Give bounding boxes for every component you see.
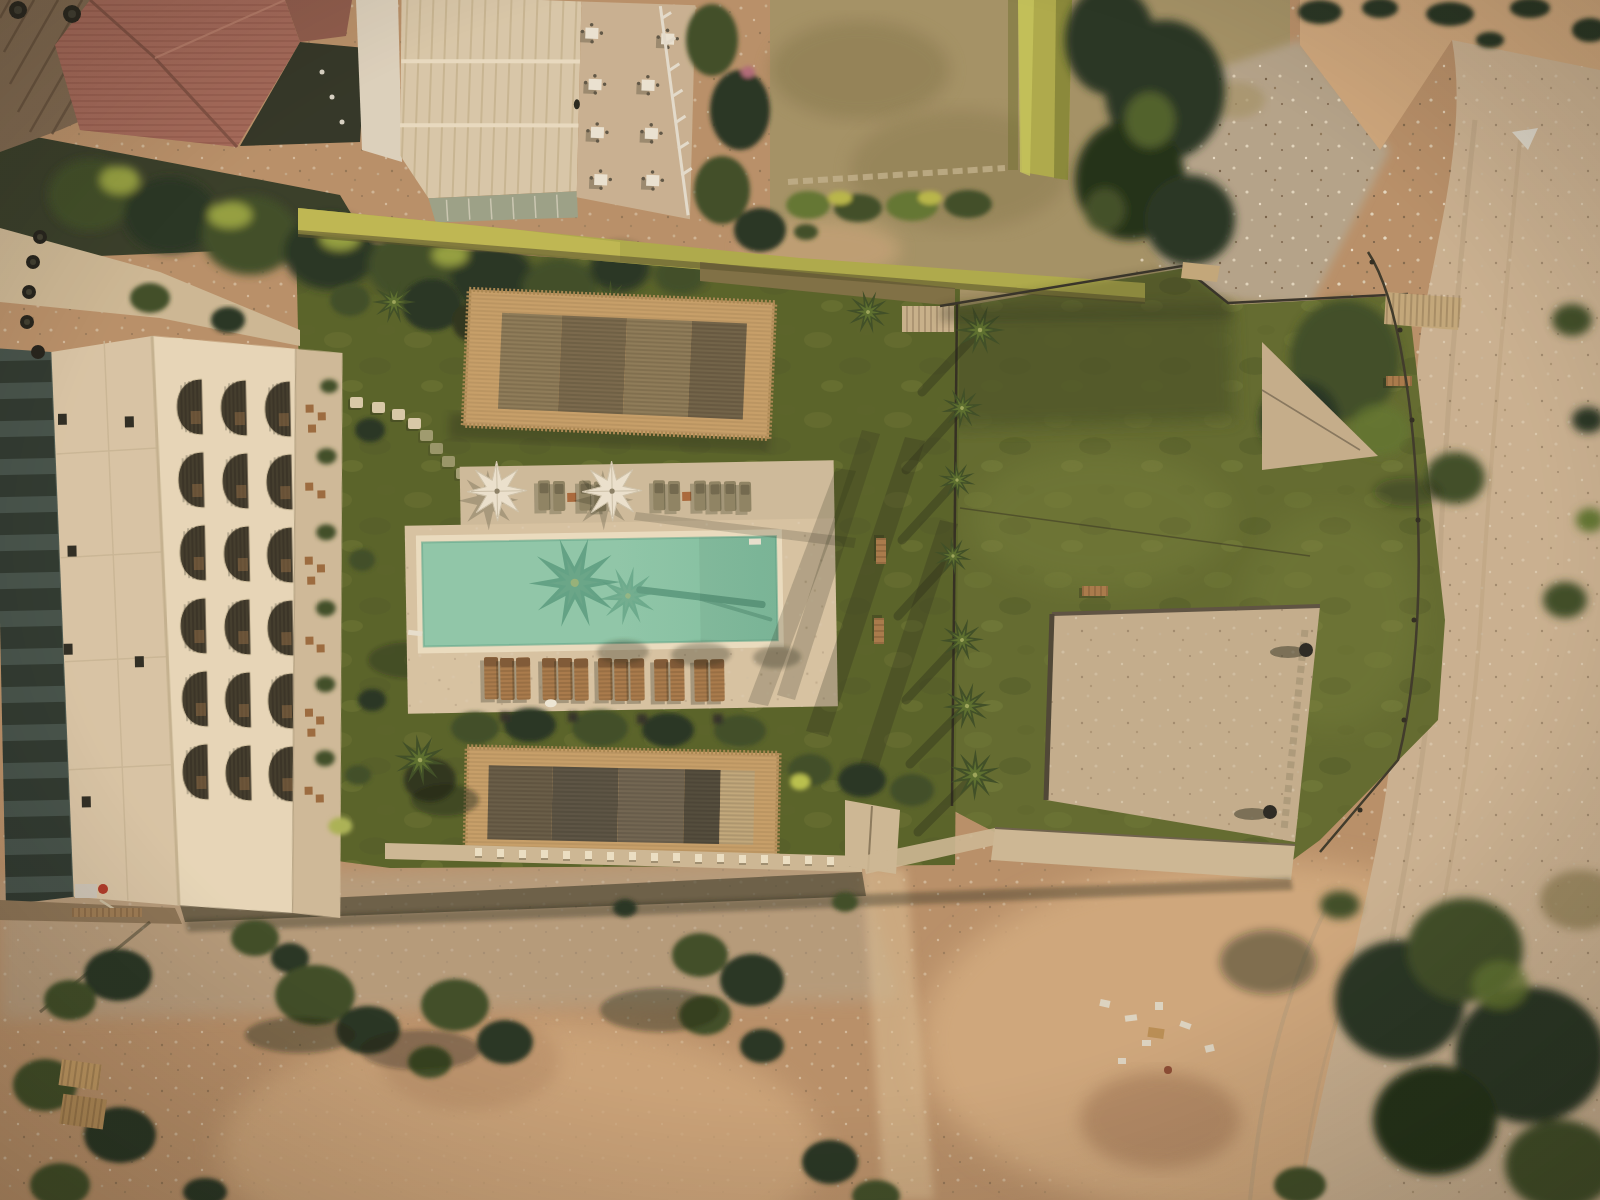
photo-canvas — [0, 0, 1600, 1200]
aerial-photo — [0, 0, 1600, 1200]
vignette — [0, 0, 1600, 1200]
